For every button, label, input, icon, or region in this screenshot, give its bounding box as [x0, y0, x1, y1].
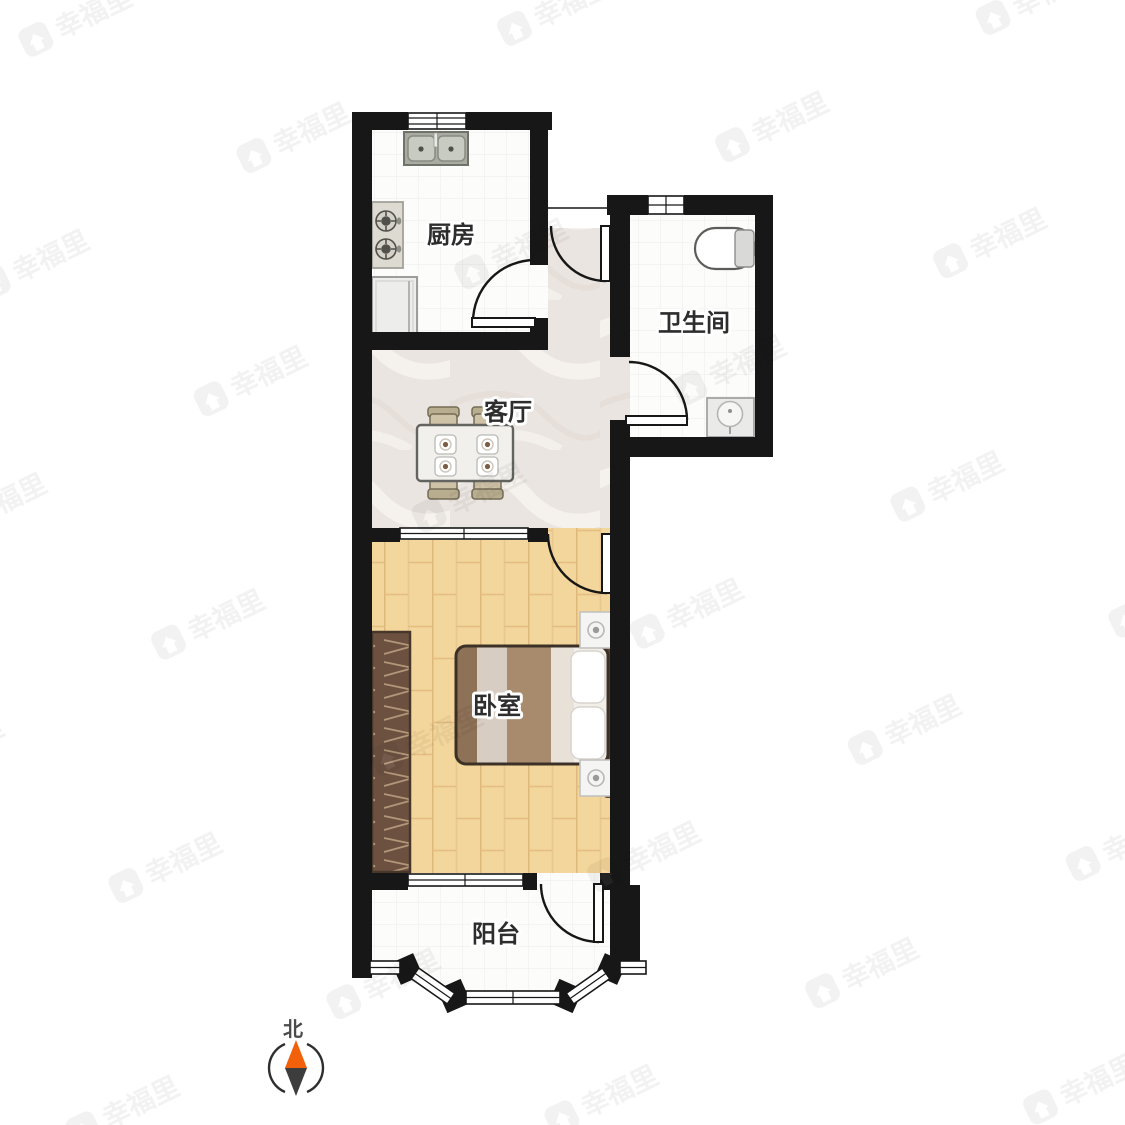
watermark-layer: [0, 0, 1125, 1125]
floorplan-page: 幸福里 幸福里: [0, 0, 1125, 1125]
floorplan: 幸福里 幸福里: [0, 0, 1125, 1125]
